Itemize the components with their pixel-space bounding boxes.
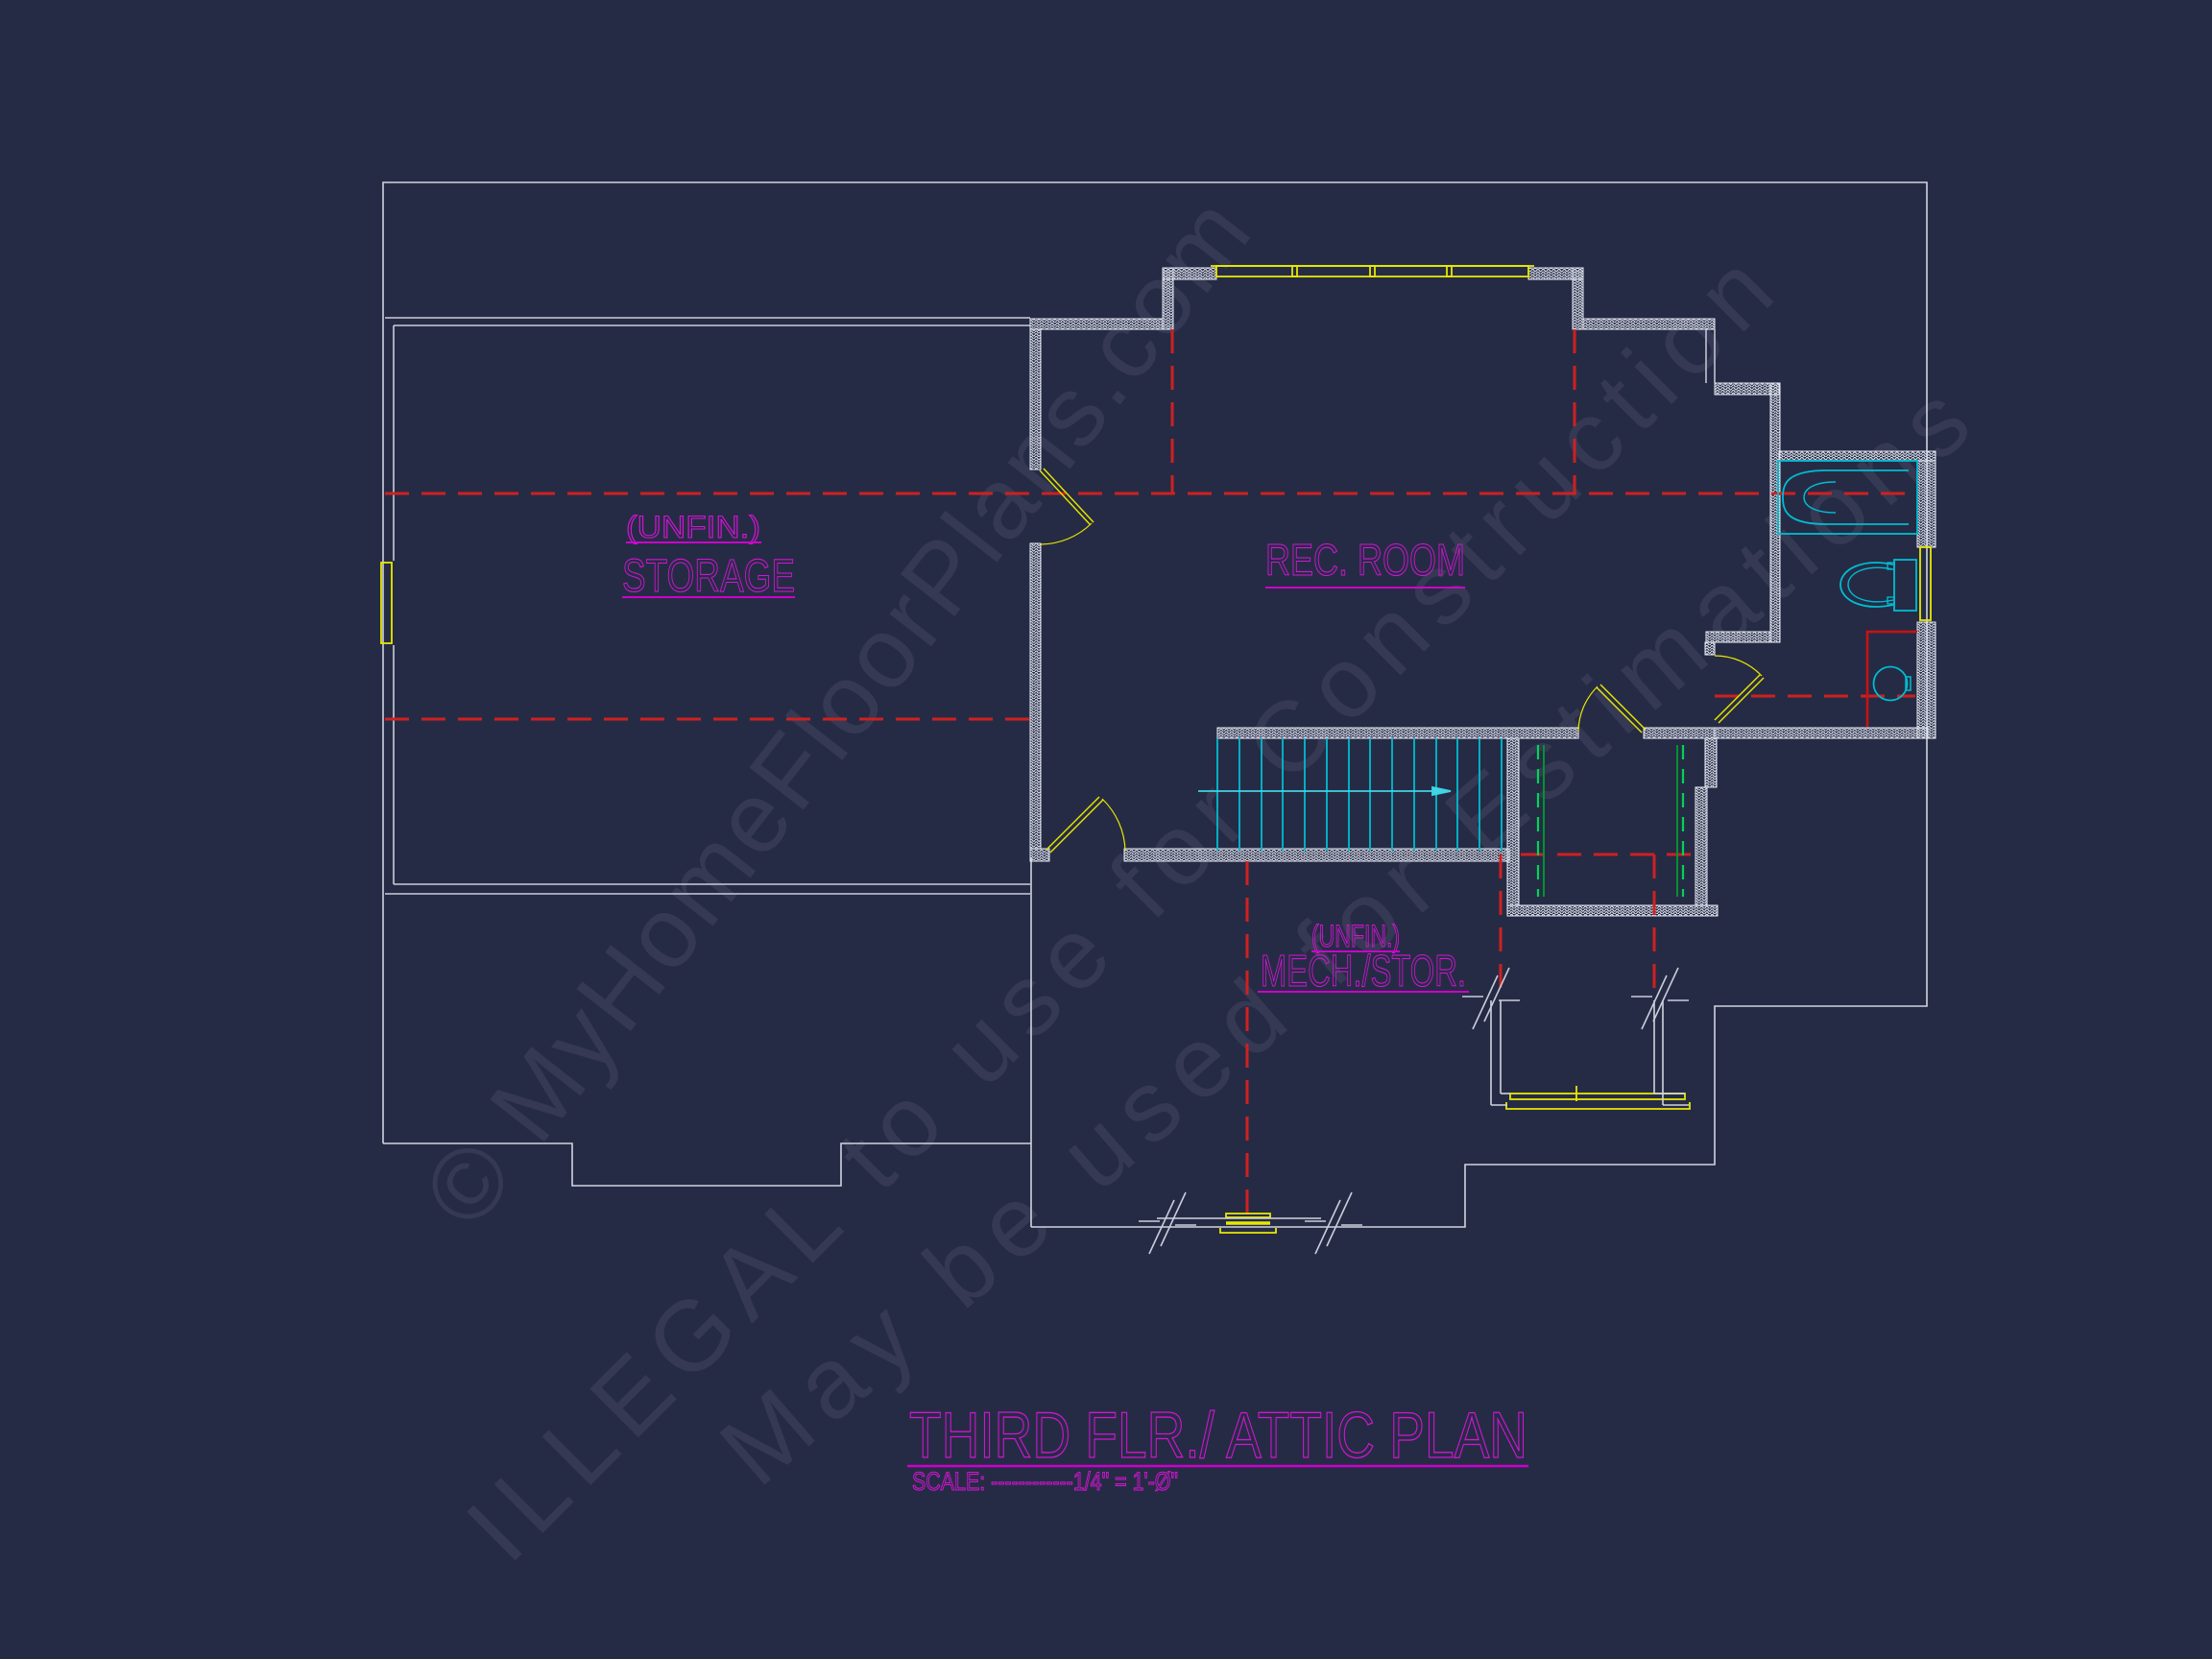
svg-text:STORAGE: STORAGE — [622, 551, 795, 602]
svg-text:SCALE: ------------1/4" = 1'-Ø: SCALE: ------------1/4" = 1'-Ø" — [912, 1467, 1178, 1496]
svg-text:REC. ROOM: REC. ROOM — [1265, 535, 1465, 585]
svg-text:(UNFIN.): (UNFIN.) — [626, 510, 760, 544]
svg-text:MECH./STOR.: MECH./STOR. — [1261, 946, 1466, 996]
svg-text:THIRD FLR./ ATTIC PLAN: THIRD FLR./ ATTIC PLAN — [909, 1399, 1527, 1472]
